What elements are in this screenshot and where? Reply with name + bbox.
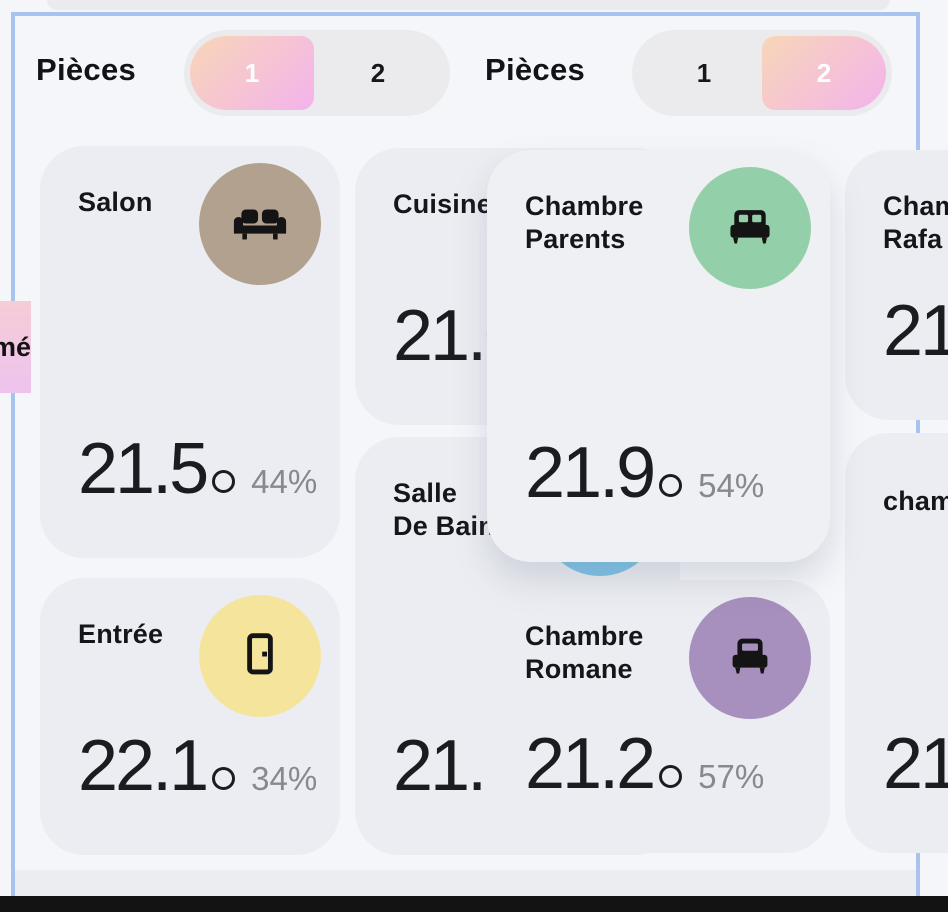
degree-icon (212, 767, 235, 790)
humidity-value: 44% (251, 463, 317, 501)
toggle-option-1[interactable]: 1 (642, 36, 766, 110)
readings: 21.9 54% (525, 433, 764, 528)
room-name: chambre (845, 433, 948, 518)
room-card-chambre-romane[interactable]: Chambre Romane 21.2 57% (487, 580, 830, 853)
room-card-chambre-rafa[interactable]: Chambre Rafa 21 (845, 150, 948, 420)
bed-single-icon (721, 629, 779, 687)
bed-double-icon (721, 199, 779, 257)
rooms-page-toggle[interactable]: 1 2 (632, 30, 892, 116)
degree-icon (659, 765, 682, 788)
door-icon (231, 627, 289, 685)
temperature-value: 22.1 (78, 726, 206, 807)
room-card-entree[interactable]: Entrée 22.1 34% (40, 578, 340, 855)
toggle-option-1[interactable]: 1 (190, 36, 314, 110)
room-card-salon[interactable]: Salon 21.5 44% (40, 146, 340, 558)
toggle-option-2[interactable]: 2 (762, 36, 886, 110)
rooms-page-toggle[interactable]: 1 2 (184, 30, 450, 116)
bottom-strip (14, 870, 918, 896)
highlight-frame-top (11, 12, 920, 16)
degree-icon (212, 470, 235, 493)
temperature-value: 21 (883, 724, 948, 805)
temperature-value: 21.5 (78, 429, 206, 510)
temperature-value: 21.9 (525, 433, 653, 514)
humidity-value: 57% (698, 758, 764, 796)
room-card-chambre[interactable]: chambre 21 (845, 433, 948, 853)
temperature-value: 21.2 (525, 724, 653, 805)
highlight-frame-left (11, 12, 15, 896)
readings: 21.2 57% (525, 724, 764, 819)
readings: 21 (883, 291, 948, 386)
room-icon-circle (199, 163, 321, 285)
room-icon-circle (689, 597, 811, 719)
top-peek-strip (47, 0, 890, 10)
smart-home-dashboard: { "theme": { "page_bg": "#f4f6fa", "card… (0, 0, 948, 912)
readings: 21.5 44% (78, 429, 317, 524)
readings: 21 (883, 724, 948, 819)
room-name: Chambre Rafa (845, 150, 948, 256)
toggle-option-2[interactable]: 2 (316, 36, 440, 110)
room-icon-circle (199, 595, 321, 717)
degree-icon (659, 474, 682, 497)
readings: 22.1 34% (78, 726, 317, 821)
humidity-value: 34% (251, 760, 317, 798)
pink-chip[interactable]: mé (0, 301, 31, 393)
bottom-bar (0, 896, 948, 912)
humidity-value: 54% (698, 467, 764, 505)
sofa-icon (231, 195, 289, 253)
rooms-label: Pièces (485, 50, 585, 90)
room-card-chambre-parents[interactable]: Chambre Parents 21.9 54% (487, 150, 830, 562)
temperature-value: 21 (883, 291, 948, 372)
room-icon-circle (689, 167, 811, 289)
rooms-label: Pièces (36, 50, 136, 90)
